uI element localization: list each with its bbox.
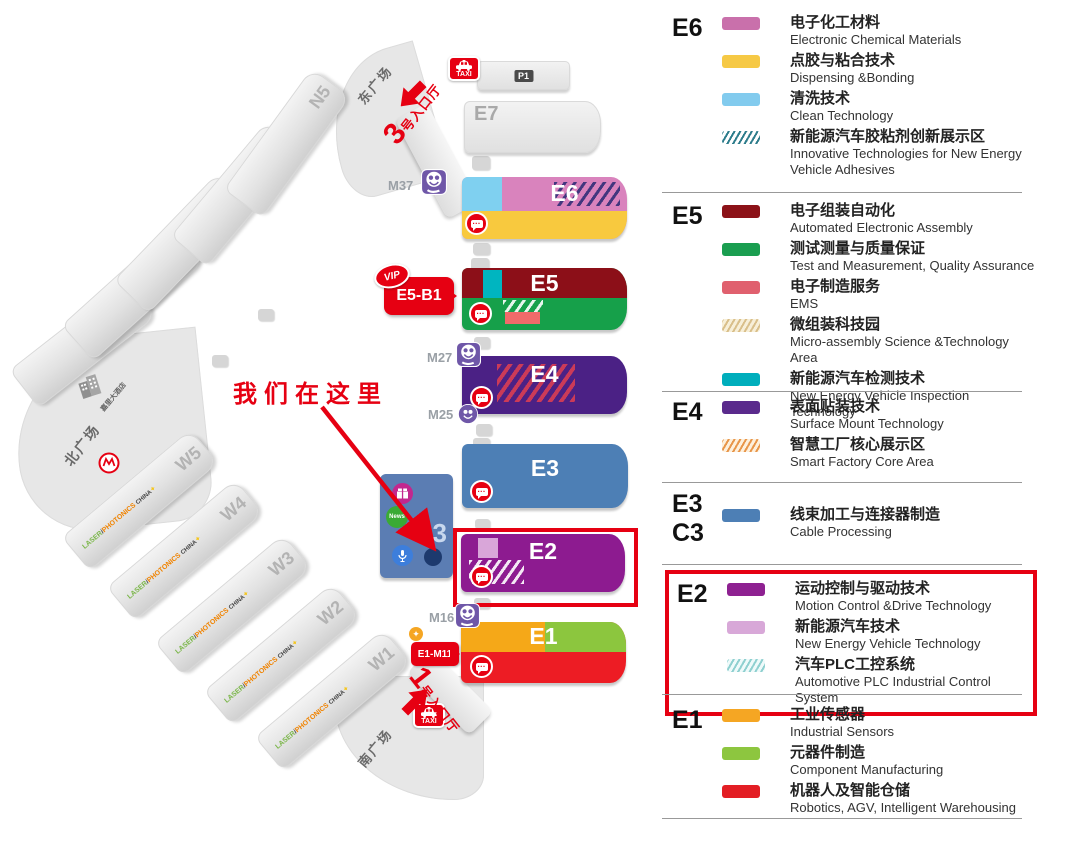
category-label-zh: 点胶与粘合技术 — [790, 52, 1038, 70]
category-label-zh: 新能源汽车技术 — [795, 618, 1033, 636]
gift-icon — [392, 483, 413, 504]
legend-item: 清洗技术Clean Technology — [722, 90, 1038, 124]
category-label-zh: 智慧工厂核心展示区 — [790, 436, 1038, 454]
map-area: 东广场 南广场 北广场 嘉里大酒店 N1 N2 N3 — [0, 0, 660, 843]
chat-bubble-icon: ··· — [470, 655, 493, 678]
category-label-en: Clean Technology — [790, 108, 1038, 124]
category-label-en: Robotics, AGV, Intelligent Warehousing — [790, 800, 1038, 816]
meeting-point-icon-m25 — [458, 404, 478, 424]
color-swatch — [727, 621, 765, 634]
color-swatch — [722, 401, 760, 414]
chat-bubble-icon: ··· — [469, 302, 492, 325]
hall-e7-label: E7 — [474, 103, 498, 126]
legend-item: 元器件制造Component Manufacturing — [722, 744, 1038, 778]
meeting-point-icon-m27 — [456, 342, 481, 367]
hall-e3-label: E3 — [462, 455, 628, 482]
e1-m11-badge: E1-M11 — [411, 642, 459, 666]
hall-e2-label: E2 — [461, 538, 625, 565]
hall-c3-label: C3 — [414, 518, 447, 549]
category-label-zh: 电子组装自动化 — [790, 202, 1038, 220]
category-label-zh: 运动控制与驱动技术 — [795, 580, 1033, 598]
category-label-en: Industrial Sensors — [790, 724, 1038, 740]
laser-photonics-brand: LASERiPHOTONICS CHINA✦ — [126, 534, 203, 601]
color-swatch — [722, 785, 760, 798]
color-swatch — [722, 281, 760, 294]
marker-m16-label: M16 — [429, 610, 454, 625]
legend-separator — [662, 192, 1022, 193]
hall-code-label: E4 — [672, 398, 722, 470]
hall-e6-label: E6 — [502, 180, 627, 207]
legend-section-e4: E4表面贴装技术Surface Mount Technology智慧工厂核心展示… — [660, 398, 1038, 470]
news-icon: News — [386, 506, 408, 528]
category-label-en: Surface Mount Technology — [790, 416, 1038, 432]
e6-clean-zone — [462, 177, 502, 211]
laser-photonics-brand: LASERiPHOTONICS CHINA✦ — [223, 638, 300, 705]
category-label-zh: 线束加工与连接器制造 — [790, 506, 1038, 524]
legend-separator — [662, 818, 1022, 819]
hall-n5-label: N5 — [305, 82, 336, 113]
category-label-en: Innovative Technologies for New Energy V… — [790, 146, 1038, 178]
legend-item: 智慧工厂核心展示区Smart Factory Core Area — [722, 436, 1038, 470]
legend-item: 电子化工材料Electronic Chemical Materials — [722, 14, 1038, 48]
hall-code-label: E6 — [672, 14, 722, 178]
legend-item: 机器人及智能仓储Robotics, AGV, Intelligent Wareh… — [722, 782, 1038, 816]
hall-w2-label: W2 — [314, 596, 348, 629]
expo-floorplan: 东广场 南广场 北广场 嘉里大酒店 N1 N2 N3 — [0, 0, 1080, 843]
hall-w5-label: W5 — [172, 442, 206, 475]
hall-e5-label: E5 — [462, 270, 627, 297]
hall-e6: E6 — [462, 177, 627, 239]
hall-code-label: E2 — [677, 580, 727, 706]
hall-code-label: E5 — [672, 202, 722, 420]
e5-ems-zone — [505, 312, 540, 324]
legend-item: 微组装科技园Micro-assembly Science &Technology… — [722, 316, 1038, 366]
we-are-here-label: 我们在这里 — [233, 374, 388, 409]
category-label-en: Automated Electronic Assembly — [790, 220, 1038, 236]
category-label-en: Motion Control &Drive Technology — [795, 598, 1033, 614]
chat-bubble-icon: ··· — [470, 565, 493, 588]
hotel-icon — [76, 372, 106, 402]
c3-dark-icon — [424, 548, 442, 566]
category-label-en: Electronic Chemical Materials — [790, 32, 1038, 48]
marker-m25-label: M25 — [428, 407, 453, 422]
legend-item: 运动控制与驱动技术Motion Control &Drive Technolog… — [727, 580, 1033, 614]
meeting-point-icon-m16 — [455, 603, 480, 628]
category-label-en: New Energy Vehicle Technology — [795, 636, 1033, 652]
color-swatch — [722, 439, 760, 452]
legend-separator — [662, 482, 1022, 483]
hall-w4-label: W4 — [217, 492, 251, 525]
hall-p1: P1 — [477, 61, 570, 90]
e5-microassembly-hatch-zone — [503, 300, 543, 312]
legend-section-e3: E3C3线束加工与连接器制造Cable Processing — [660, 490, 1038, 548]
legend-item: 点胶与粘合技术Dispensing &Bonding — [722, 52, 1038, 86]
category-label-en: Test and Measurement, Quality Assurance — [790, 258, 1038, 274]
marker-m27-label: M27 — [427, 350, 452, 365]
legend-section-e6: E6电子化工材料Electronic Chemical Materials点胶与… — [660, 14, 1038, 178]
legend-item: 表面贴装技术Surface Mount Technology — [722, 398, 1038, 432]
meeting-point-icon-m37 — [421, 169, 447, 195]
laser-photonics-brand: LASERiPHOTONICS CHINA✦ — [274, 684, 351, 751]
color-swatch — [722, 243, 760, 256]
category-label-en: Cable Processing — [790, 524, 1038, 540]
color-swatch — [722, 319, 760, 332]
legend-item: 汽车PLC工控系统Automotive PLC Industrial Contr… — [727, 656, 1033, 706]
microphone-icon — [392, 545, 413, 566]
legend-item: 线束加工与连接器制造Cable Processing — [722, 506, 1038, 540]
legend-separator — [662, 564, 1022, 565]
legend: E6电子化工材料Electronic Chemical Materials点胶与… — [660, 0, 1045, 843]
category-label-zh: 电子制造服务 — [790, 278, 1038, 296]
color-swatch — [722, 747, 760, 760]
category-label-en: Dispensing &Bonding — [790, 70, 1038, 86]
hall-w3-label: W3 — [265, 547, 299, 580]
hall-e7: E7 — [464, 101, 601, 153]
category-label-en: EMS — [790, 296, 1038, 312]
color-swatch — [722, 55, 760, 68]
color-swatch — [722, 93, 760, 106]
color-swatch — [727, 659, 765, 672]
hall-code-label: E3C3 — [672, 490, 722, 548]
category-label-zh: 新能源汽车胶粘剂创新展示区 — [790, 128, 1038, 146]
color-swatch — [722, 131, 760, 144]
legend-item: 电子组装自动化Automated Electronic Assembly — [722, 202, 1038, 236]
category-label-zh: 汽车PLC工控系统 — [795, 656, 1033, 674]
vip-e5-b1-badge: E5-B1 VIP — [384, 277, 454, 315]
chat-bubble-icon: ··· — [465, 212, 488, 235]
marker-m37-label: M37 — [388, 178, 413, 193]
legend-item: 测试测量与质量保证Test and Measurement, Quality A… — [722, 240, 1038, 274]
hall-n5: N5 — [223, 68, 350, 218]
category-label-zh: 工业传感器 — [790, 706, 1038, 724]
category-label-en: Smart Factory Core Area — [790, 454, 1038, 470]
laser-photonics-brand: LASERiPHOTONICS CHINA✦ — [174, 589, 251, 656]
legend-section-e5: E5电子组装自动化Automated Electronic Assembly测试… — [660, 202, 1038, 420]
color-swatch — [722, 205, 760, 218]
taxi-icon: TAXI — [448, 56, 480, 81]
parking-p1-badge: P1 — [514, 70, 533, 82]
category-label-en: Micro-assembly Science &Technology Area — [790, 334, 1038, 366]
taxi-label: TAXI — [456, 71, 471, 78]
venue-logo-icon — [98, 452, 120, 474]
legend-item: 新能源汽车胶粘剂创新展示区Innovative Technologies for… — [722, 128, 1038, 178]
hall-e1-label: E1 — [461, 623, 626, 650]
legend-item: 新能源汽车技术New Energy Vehicle Technology — [727, 618, 1033, 652]
category-label-zh: 新能源汽车检测技术 — [790, 370, 1038, 388]
color-swatch — [722, 17, 760, 30]
hall-w1-label: W1 — [365, 642, 399, 675]
category-label-zh: 机器人及智能仓储 — [790, 782, 1038, 800]
legend-item: 工业传感器Industrial Sensors — [722, 706, 1038, 740]
color-swatch — [722, 709, 760, 722]
category-label-zh: 电子化工材料 — [790, 14, 1038, 32]
category-label-zh: 元器件制造 — [790, 744, 1038, 762]
color-swatch — [722, 509, 760, 522]
legend-item: 电子制造服务EMS — [722, 278, 1038, 312]
category-label-zh: 微组装科技园 — [790, 316, 1038, 334]
category-label-zh: 测试测量与质量保证 — [790, 240, 1038, 258]
category-label-en: Automotive PLC Industrial Control System — [795, 674, 1033, 706]
legend-section-e1: E1工业传感器Industrial Sensors元器件制造Component … — [660, 706, 1038, 816]
hall-e4-label: E4 — [462, 361, 627, 388]
legend-separator — [662, 391, 1022, 392]
legend-separator — [662, 694, 1022, 695]
color-swatch — [722, 373, 760, 386]
entrance-star-icon: ✦ — [409, 627, 423, 641]
category-label-zh: 清洗技术 — [790, 90, 1038, 108]
color-swatch — [727, 583, 765, 596]
chat-bubble-icon: ··· — [470, 480, 493, 503]
category-label-zh: 表面贴装技术 — [790, 398, 1038, 416]
category-label-en: Component Manufacturing — [790, 762, 1038, 778]
hall-code-label: E1 — [672, 706, 722, 816]
